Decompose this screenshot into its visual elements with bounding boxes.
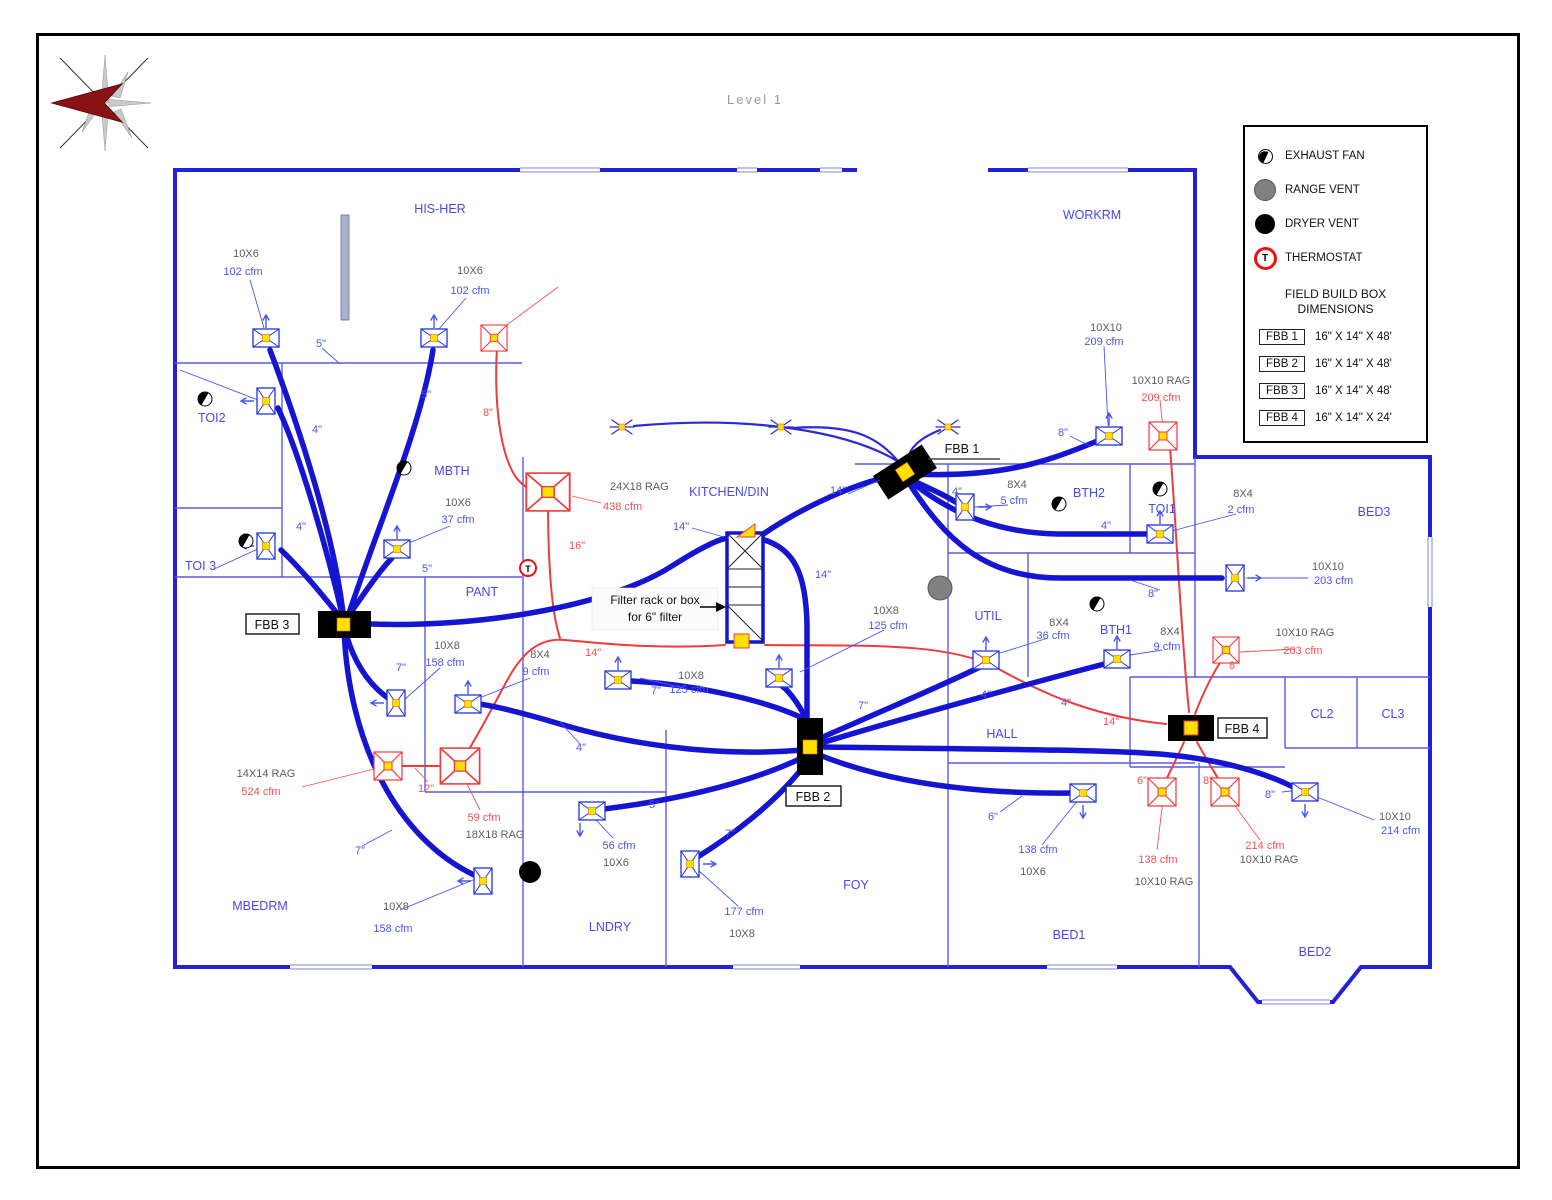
svg-text:FBB 4: FBB 4	[1225, 722, 1260, 736]
duct-cfm: 2 cfm	[1228, 504, 1255, 516]
room-label: MBTH	[434, 464, 469, 478]
supply-register	[1104, 650, 1130, 668]
duct-callout: 14"	[585, 647, 601, 659]
return-cfm: 209 cfm	[1141, 392, 1180, 404]
room-label: BED2	[1299, 945, 1332, 959]
fbb-tag: FBB 1	[1259, 329, 1305, 345]
room-label: WORKRM	[1063, 208, 1121, 222]
room-label: CL2	[1311, 707, 1334, 721]
return-grille	[1148, 778, 1176, 806]
thermostat-icon: T	[520, 560, 536, 576]
damper-bottom	[734, 634, 749, 648]
supply-register	[455, 695, 481, 713]
ceiling-outlet	[610, 420, 634, 434]
filter-rack	[727, 524, 763, 648]
supply-register	[384, 540, 410, 558]
return-grille	[374, 752, 402, 780]
duct-callout: 5"	[421, 389, 431, 401]
floor-plan-page: T Level 1 HIS-HER TOI2 TOI 3 MBTH PANT M…	[0, 0, 1552, 1200]
duct-cfm: 177 cfm	[724, 906, 763, 918]
room-label: CL3	[1382, 707, 1405, 721]
return-size: 14X14 RAG	[237, 768, 296, 780]
damper-top	[737, 524, 755, 537]
drawing-title: Level 1	[727, 92, 783, 107]
thermostat-letter: T	[525, 564, 531, 574]
duct-callout: 6"	[1137, 775, 1147, 787]
duct-callout: 16"	[569, 540, 585, 552]
fbb-tag: FBB 2	[1259, 356, 1305, 372]
svg-text:FBB 3: FBB 3	[255, 618, 290, 632]
duct-callout: 14"	[815, 569, 831, 581]
supply-register	[387, 690, 405, 716]
note-line2: for 6" filter	[628, 610, 682, 624]
legend-row-thermostat: T THERMOSTAT	[1245, 247, 1426, 269]
ceiling-outlet	[936, 420, 960, 434]
return-cfm: 214 cfm	[1245, 840, 1284, 852]
fbb1-tag: FBB 1	[945, 442, 980, 456]
supply-register	[973, 651, 999, 669]
room-label: KITCHEN/DIN	[689, 485, 769, 499]
return-cfm: 138 cfm	[1138, 854, 1177, 866]
exhaust-fan-icon	[1258, 149, 1273, 164]
duct-callout: 8"	[1058, 427, 1068, 439]
exhaust-fan-icon	[195, 389, 212, 406]
duct-cfm: 9 cfm	[1154, 641, 1181, 653]
duct-size: 10X10	[1090, 322, 1122, 334]
exhaust-fan-icon	[1087, 594, 1104, 611]
return-grille	[1211, 778, 1239, 806]
room-label: FOY	[843, 878, 869, 892]
duct-size: 8X4	[1233, 488, 1253, 500]
fbb-dim: 16" X 14" X 48'	[1315, 385, 1392, 397]
legend-row-dryer-vent: DRYER VENT	[1245, 213, 1426, 235]
fbb-dim-row: FBB 4 16" X 14" X 24'	[1259, 408, 1392, 428]
fbb-tag: FBB 4	[1259, 410, 1305, 426]
return-size: 10X10 RAG	[1135, 876, 1194, 888]
duct-size: 10X6	[603, 857, 629, 869]
duct-callout: 8"	[483, 407, 493, 419]
fbb-heading-line1: FIELD BUILD BOX	[1245, 287, 1426, 301]
return-cfm: 59 cfm	[467, 812, 500, 824]
duct-callout: 4"	[576, 742, 586, 754]
duct-size: 10X6	[457, 265, 483, 277]
supply-register	[253, 329, 279, 347]
duct-callout: 7"	[651, 685, 661, 697]
note-line1: Filter rack or box	[610, 593, 699, 607]
return-cfm: 438 cfm	[603, 501, 642, 513]
duct-callout: 4"	[1101, 520, 1111, 532]
duct-callout: 7"	[355, 845, 365, 857]
fbb-dim: 16" X 14" X 24'	[1315, 412, 1392, 424]
duct-cfm: 102 cfm	[450, 285, 489, 297]
room-label: BTH1	[1100, 623, 1132, 637]
exhaust-fan-icon	[236, 531, 253, 548]
fbb2-box	[797, 718, 823, 775]
duct-cfm: 125 cfm	[868, 620, 907, 632]
duct-size: 8X4	[530, 649, 550, 661]
fbb-dim-row: FBB 1 16" X 14" X 48'	[1259, 327, 1392, 347]
duct-cfm: 138 cfm	[1018, 844, 1057, 856]
fbb3-box	[318, 611, 371, 638]
duct-callout: 4"	[952, 486, 962, 498]
filter-note: Filter rack or box for 6" filter	[592, 588, 726, 630]
duct-callout: 12"	[418, 783, 434, 795]
range-vent-icon	[928, 576, 952, 600]
supply-register	[1070, 784, 1096, 802]
supply-register	[1226, 565, 1244, 591]
return-cfm: 203 cfm	[1283, 645, 1322, 657]
room-label: TOI1	[1148, 502, 1176, 516]
fbb3-tag: FBB 3	[246, 614, 299, 634]
duct-callout: 14"	[830, 485, 846, 497]
exhaust-fan-icon	[1049, 494, 1066, 511]
room-label: LNDRY	[589, 920, 632, 934]
fbb-dim: 16" X 14" X 48'	[1315, 331, 1392, 343]
supply-register	[579, 802, 605, 820]
fbb-heading-line2: DIMENSIONS	[1245, 302, 1426, 316]
duct-size: 10X10	[1312, 561, 1344, 573]
legend-label: THERMOSTAT	[1285, 252, 1363, 264]
room-label: HALL	[986, 727, 1017, 741]
duct-cfm: 158 cfm	[425, 657, 464, 669]
room-label: BED1	[1053, 928, 1086, 942]
duct-cfm: 158 cfm	[373, 923, 412, 935]
legend-label: EXHAUST FAN	[1285, 150, 1365, 162]
duct-size: 10X8	[383, 901, 409, 913]
return-size: 10X10 RAG	[1132, 375, 1191, 387]
duct-size: 10X8	[729, 928, 755, 940]
legend-box: EXHAUST FAN RANGE VENT DRYER VENT T THER…	[1243, 125, 1428, 443]
duct-size: 10X6	[233, 248, 259, 260]
svg-text:FBB 2: FBB 2	[796, 790, 831, 804]
duct-callout: 5"	[316, 338, 326, 350]
legend-row-range-vent: RANGE VENT	[1245, 179, 1426, 201]
duct-size: 10X10	[1379, 811, 1411, 823]
duct-size: 8X4	[1007, 479, 1027, 491]
fbb4-tag: FBB 4	[1218, 718, 1267, 738]
duct-cfm: 9 cfm	[523, 666, 550, 678]
duct-cfm: 36 cfm	[1036, 630, 1069, 642]
return-grille	[440, 748, 479, 784]
legend-row-exhaust-fan: EXHAUST FAN	[1245, 145, 1426, 167]
supply-register	[1292, 783, 1318, 801]
room-label: BED3	[1358, 505, 1391, 519]
dryer-vent-icon	[519, 861, 541, 883]
duct-cfm: 203 cfm	[1314, 575, 1353, 587]
legend-label: DRYER VENT	[1285, 218, 1359, 230]
supply-register	[1096, 427, 1122, 445]
duct-callout: 7"	[725, 828, 735, 840]
supply-register	[257, 533, 275, 559]
duct-callout: 5"	[649, 799, 659, 811]
duct-callout: 14"	[673, 521, 689, 533]
range-vent-icon	[1254, 179, 1276, 201]
supply-register	[257, 388, 275, 414]
return-grille	[481, 325, 507, 351]
room-label: HIS-HER	[414, 202, 465, 216]
duct-callout: 8"	[1203, 775, 1213, 787]
ceiling-outlet	[769, 420, 793, 434]
fbb-dim-row: FBB 3 16" X 14" X 48'	[1259, 381, 1392, 401]
duct-callout: 5"	[422, 563, 432, 575]
return-grille	[526, 473, 569, 511]
return-cfm: 524 cfm	[241, 786, 280, 798]
duct-callout: 8"	[1229, 660, 1239, 672]
duct-callout: 4"	[981, 689, 991, 701]
wall-segment	[341, 215, 349, 320]
thermostat-icon: T	[1254, 247, 1277, 270]
return-size: 10X10 RAG	[1240, 854, 1299, 866]
return-size: 10X10 RAG	[1276, 627, 1335, 639]
duct-size: 8X4	[1049, 617, 1069, 629]
supply-labels: 10X6 102 cfm 10X6 102 cfm 10X6 37 cfm 10…	[223, 248, 1420, 940]
room-label: PANT	[466, 585, 499, 599]
note-arrow	[716, 602, 726, 612]
room-label: BTH2	[1073, 486, 1105, 500]
duct-cfm: 102 cfm	[223, 266, 262, 278]
supply-register	[1147, 525, 1173, 543]
duct-size: 10X8	[873, 605, 899, 617]
duct-callout: 7"	[858, 700, 868, 712]
room-label: UTIL	[974, 609, 1001, 623]
fbb-tag: FBB 3	[1259, 383, 1305, 399]
supply-register	[766, 669, 792, 687]
legend-label: RANGE VENT	[1285, 184, 1360, 196]
duct-size: 10X6	[1020, 866, 1046, 878]
fbb2-tag: FBB 2	[786, 786, 841, 806]
room-label: TOI 3	[185, 559, 216, 573]
duct-size: 8X4	[1160, 626, 1180, 638]
room-label: MBEDRM	[232, 899, 288, 913]
room-label: TOI2	[198, 411, 226, 425]
return-grille	[1149, 422, 1177, 450]
dryer-vent-icon	[1255, 214, 1275, 234]
duct-cfm: 209 cfm	[1084, 336, 1123, 348]
duct-callout: 8"	[1148, 588, 1158, 600]
duct-size: 10X8	[678, 670, 704, 682]
fbb-dim-row: FBB 2 16" X 14" X 48'	[1259, 354, 1392, 374]
duct-cfm: 56 cfm	[602, 840, 635, 852]
fbb-dim: 16" X 14" X 48'	[1315, 358, 1392, 370]
supply-register	[605, 671, 631, 689]
fbb4-box	[1168, 715, 1214, 741]
duct-callout: 6"	[988, 811, 998, 823]
supply-register	[421, 329, 447, 347]
duct-size: 10X6	[445, 497, 471, 509]
duct-callout: 4"	[312, 424, 322, 436]
duct-callout: 7"	[396, 662, 406, 674]
duct-callout: 8"	[1265, 789, 1275, 801]
duct-size: 10X8	[434, 640, 460, 652]
return-size: 24X18 RAG	[610, 481, 669, 493]
duct-callout: 14"	[1103, 716, 1119, 728]
duct-cfm: 214 cfm	[1381, 825, 1420, 837]
supply-register	[681, 851, 699, 877]
duct-cfm: 37 cfm	[441, 514, 474, 526]
duct-callout: 4"	[296, 521, 306, 533]
return-size: 18X18 RAG	[466, 829, 525, 841]
duct-cfm: 5 cfm	[1001, 495, 1028, 507]
compass-rose	[52, 55, 151, 151]
duct-cfm: 125 cfm	[669, 684, 708, 696]
duct-callout: 4"	[1061, 697, 1071, 709]
exhaust-fan-icon	[1150, 479, 1167, 496]
supply-register	[474, 868, 492, 894]
